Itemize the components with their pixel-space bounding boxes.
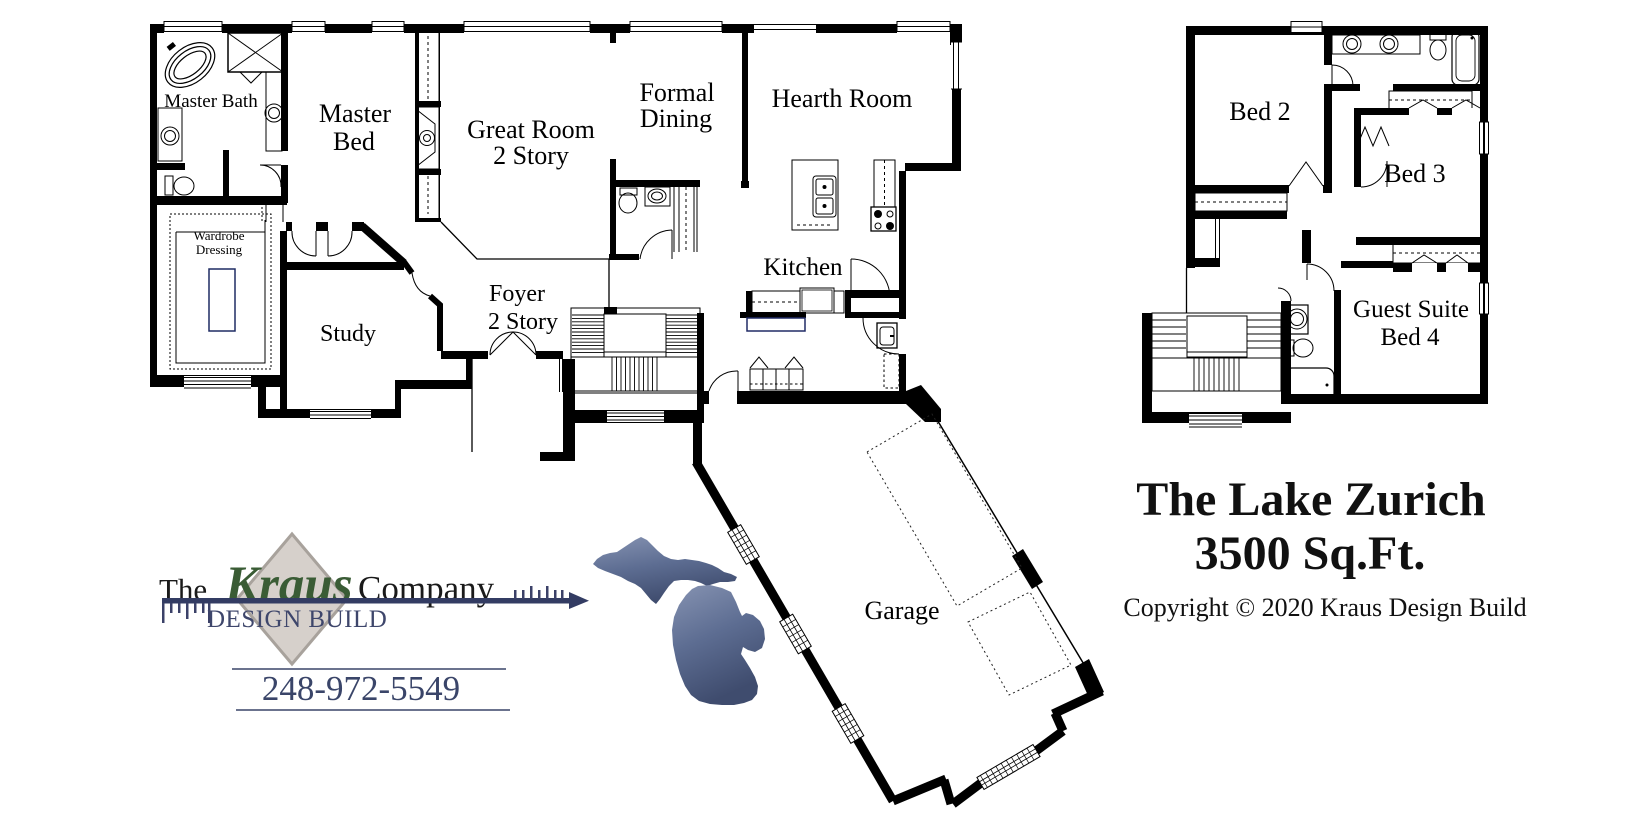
svg-text:2 Story: 2 Story	[488, 309, 558, 335]
svg-text:Bed 2: Bed 2	[1229, 97, 1290, 126]
svg-text:Dining: Dining	[640, 104, 712, 133]
svg-text:Wardrobe: Wardrobe	[194, 228, 245, 243]
svg-text:DESIGN BUILD: DESIGN BUILD	[207, 606, 387, 633]
svg-text:3500 Sq.Ft.: 3500 Sq.Ft.	[1195, 527, 1426, 580]
svg-text:248-972-5549: 248-972-5549	[262, 669, 460, 708]
svg-text:Copyright © 2020 Kraus Design: Copyright © 2020 Kraus Design Build	[1123, 593, 1526, 622]
svg-text:Kitchen: Kitchen	[763, 254, 843, 281]
svg-text:Formal: Formal	[639, 78, 714, 107]
svg-text:Dressing: Dressing	[196, 242, 243, 257]
svg-text:Guest Suite: Guest Suite	[1353, 296, 1469, 323]
svg-text:Master Bath: Master Bath	[164, 91, 258, 112]
svg-text:Kraus: Kraus	[224, 557, 353, 613]
svg-text:Master: Master	[319, 99, 392, 128]
svg-text:The Lake Zurich: The Lake Zurich	[1136, 473, 1485, 526]
svg-text:Garage: Garage	[864, 596, 939, 625]
svg-text:2 Story: 2 Story	[493, 141, 569, 170]
svg-text:Foyer: Foyer	[489, 281, 545, 307]
svg-text:Bed 4: Bed 4	[1380, 324, 1440, 351]
svg-text:Study: Study	[320, 321, 376, 347]
svg-text:Great Room: Great Room	[467, 115, 595, 144]
svg-text:Hearth Room: Hearth Room	[772, 84, 913, 113]
svg-text:Bed 3: Bed 3	[1384, 159, 1445, 188]
svg-text:Bed: Bed	[333, 127, 375, 156]
